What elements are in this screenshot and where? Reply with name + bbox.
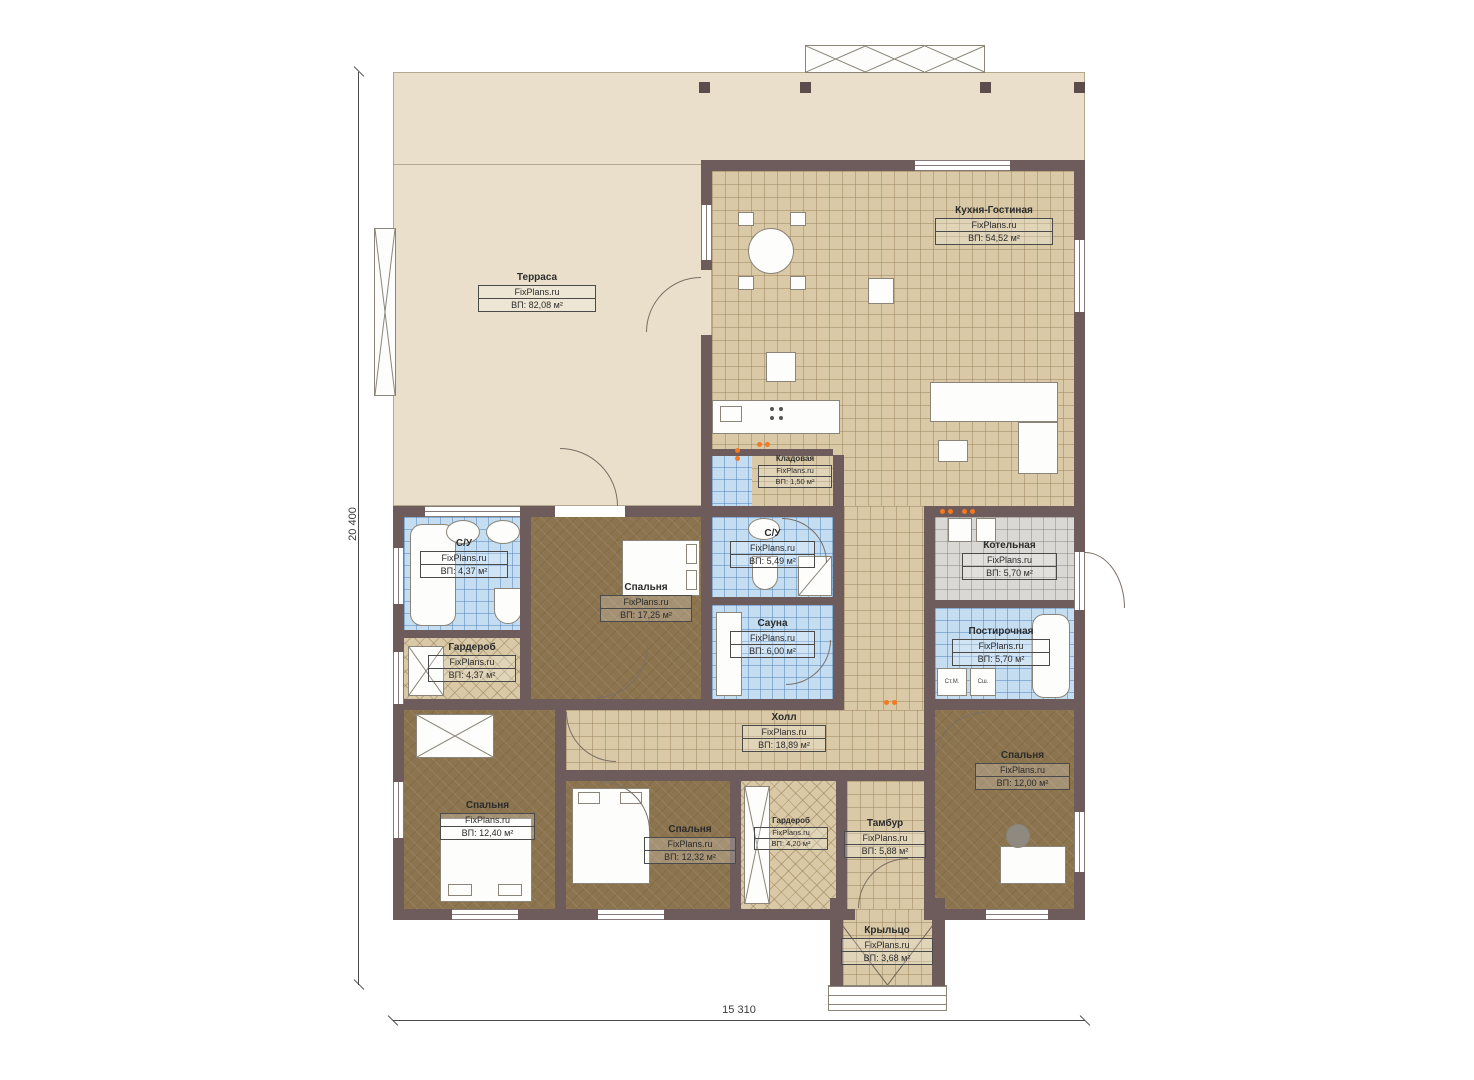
brand-text: FixPlans.ru	[976, 764, 1069, 777]
brand-text: FixPlans.ru	[963, 554, 1056, 567]
horizontal-dimension-line	[393, 1020, 1085, 1021]
room-area: ВП: 3,68 м²	[842, 952, 932, 964]
room-area: ВП: 12,32 м²	[645, 851, 735, 863]
wall	[701, 160, 1085, 171]
brand-text: FixPlans.ru	[759, 466, 831, 477]
dimension-tick	[354, 979, 365, 990]
horizontal-dimension-label: 15 310	[694, 1004, 784, 1016]
boiler-unit	[948, 518, 972, 542]
wall	[404, 630, 531, 638]
room-info-box: FixPlans.ru ВП: 6,00 м²	[730, 631, 815, 658]
terrace-side-steps	[374, 228, 396, 396]
window	[425, 506, 520, 517]
room-name: Кладовая	[758, 454, 832, 464]
room-label-sauna: Сауна FixPlans.ru ВП: 6,00 м²	[730, 618, 815, 658]
heat-vent-marker	[962, 509, 967, 514]
wall	[566, 770, 924, 781]
room-label-bedroom-right: Спальня FixPlans.ru ВП: 12,00 м²	[975, 750, 1070, 790]
toilet	[494, 588, 522, 624]
wall	[924, 506, 1085, 517]
vertical-dimension-label: 20 400	[347, 489, 359, 559]
brand-text: FixPlans.ru	[953, 640, 1049, 653]
room-label-boiler: Котельная FixPlans.ru ВП: 5,70 м²	[962, 540, 1057, 580]
room-label-terrace: Терраса FixPlans.ru ВП: 82,08 м²	[478, 272, 596, 312]
heat-vent-marker	[884, 700, 889, 705]
room-info-box: FixPlans.ru ВП: 12,40 м²	[440, 813, 535, 840]
wall	[520, 506, 531, 710]
sofa-horizontal	[930, 382, 1058, 422]
room-name: Постирочная	[952, 626, 1050, 638]
room-area: ВП: 1,50 м²	[759, 477, 831, 487]
sofa-vertical	[1018, 422, 1058, 474]
coffee-table	[938, 440, 968, 462]
room-name: Тамбур	[844, 818, 926, 830]
room-info-box: FixPlans.ru ВП: 5,70 м²	[962, 553, 1057, 580]
brand-text: FixPlans.ru	[842, 939, 932, 952]
room-info-box: FixPlans.ru ВП: 5,49 м²	[730, 541, 815, 568]
wall	[701, 506, 712, 710]
room-name: Гардероб	[428, 642, 516, 654]
terrace-floor	[393, 165, 712, 506]
wall	[701, 335, 712, 506]
heat-vent-marker	[735, 448, 740, 453]
room-name: С/У	[420, 538, 508, 550]
heat-vent-marker	[940, 509, 945, 514]
roof-post	[699, 82, 710, 93]
room-area: ВП: 4,37 м²	[421, 565, 507, 577]
pillow	[448, 884, 472, 896]
room-area: ВП: 54,52 м²	[936, 232, 1052, 244]
brand-text: FixPlans.ru	[429, 656, 515, 669]
dining-chair	[790, 276, 806, 290]
room-info-box: FixPlans.ru ВП: 4,37 м²	[420, 551, 508, 578]
room-label-bathroom-center: С/У FixPlans.ru ВП: 5,49 м²	[730, 528, 815, 568]
roof-post	[980, 82, 991, 93]
window	[393, 782, 404, 838]
room-info-box: FixPlans.ru ВП: 1,50 м²	[758, 465, 832, 488]
window	[598, 909, 664, 920]
room-area: ВП: 4,37 м²	[429, 669, 515, 681]
washing-machine: Ст.М.	[937, 668, 967, 696]
wall	[833, 455, 844, 710]
room-area: ВП: 5,88 м²	[845, 845, 925, 857]
room-label-bedroom-left: Спальня FixPlans.ru ВП: 12,40 м²	[440, 800, 535, 840]
storage-shower-strip	[712, 455, 752, 506]
wall	[935, 600, 1074, 608]
pillow	[686, 544, 697, 564]
room-area: ВП: 4,20 м²	[755, 839, 827, 849]
kitchen-island	[868, 278, 894, 304]
window	[452, 909, 518, 920]
boiler-unit	[976, 518, 996, 542]
room-area: ВП: 12,00 м²	[976, 777, 1069, 789]
hall-vertical-floor	[844, 506, 924, 710]
dining-chair	[738, 212, 754, 226]
window	[1074, 240, 1085, 312]
room-name: Спальня	[600, 582, 692, 594]
dimension-tick	[354, 66, 365, 77]
window	[915, 160, 1010, 171]
heat-vent-marker	[757, 442, 762, 447]
fireplace-stove	[766, 352, 796, 382]
hob-burners	[770, 407, 774, 411]
wall	[393, 699, 844, 710]
room-info-box: FixPlans.ru ВП: 12,32 м²	[644, 837, 736, 864]
dining-chair	[790, 212, 806, 226]
room-name: Терраса	[478, 272, 596, 284]
room-area: ВП: 12,40 м²	[441, 827, 534, 839]
room-info-box: FixPlans.ru ВП: 17,25 м²	[600, 595, 692, 622]
pillow	[498, 884, 522, 896]
room-name: Сауна	[730, 618, 815, 630]
dining-chair	[738, 276, 754, 290]
brand-text: FixPlans.ru	[479, 286, 595, 299]
room-name: Спальня	[440, 800, 535, 812]
door-arc	[1085, 552, 1125, 608]
brand-text: FixPlans.ru	[421, 552, 507, 565]
room-label-bathroom-left: С/У FixPlans.ru ВП: 4,37 м²	[420, 538, 508, 578]
room-area: ВП: 5,70 м²	[963, 567, 1056, 579]
room-area: ВП: 5,49 м²	[731, 555, 814, 567]
room-label-storage: Кладовая FixPlans.ru ВП: 1,50 м²	[758, 454, 832, 488]
room-area: ВП: 17,25 м²	[601, 609, 691, 621]
brand-text: FixPlans.ru	[845, 832, 925, 845]
room-info-box: FixPlans.ru ВП: 4,37 м²	[428, 655, 516, 682]
room-label-hall: Холл FixPlans.ru ВП: 18,89 м²	[742, 712, 826, 752]
room-name: Спальня	[975, 750, 1070, 762]
porch-steps	[828, 985, 947, 1011]
porch-wall	[932, 898, 945, 986]
wall	[555, 699, 566, 920]
roof-post	[800, 82, 811, 93]
room-label-bedroom-center: Спальня FixPlans.ru ВП: 17,25 м²	[600, 582, 692, 622]
wall	[625, 506, 844, 517]
brand-text: FixPlans.ru	[731, 632, 814, 645]
roof-post	[1074, 82, 1085, 93]
room-label-vestibule: Тамбур FixPlans.ru ВП: 5,88 м²	[844, 818, 926, 858]
room-info-box: FixPlans.ru ВП: 5,88 м²	[844, 831, 926, 858]
brand-text: FixPlans.ru	[731, 542, 814, 555]
brand-text: FixPlans.ru	[645, 838, 735, 851]
brand-text: FixPlans.ru	[441, 814, 534, 827]
boiler-door-gap	[1074, 552, 1085, 610]
dining-table	[748, 228, 794, 274]
desk	[1000, 846, 1066, 884]
top-bay-window	[805, 45, 985, 73]
room-name: Спальня	[644, 824, 736, 836]
window	[1074, 812, 1085, 872]
room-info-box: FixPlans.ru ВП: 82,08 м²	[478, 285, 596, 312]
room-info-box: FixPlans.ru ВП: 5,70 м²	[952, 639, 1050, 666]
dryer-machine: Сш.	[970, 668, 996, 696]
room-name: Гардероб	[754, 816, 828, 826]
room-info-box: FixPlans.ru ВП: 12,00 м²	[975, 763, 1070, 790]
room-name: Крыльцо	[841, 925, 933, 937]
window	[393, 548, 404, 604]
room-info-box: FixPlans.ru ВП: 18,89 м²	[742, 725, 826, 752]
room-area: ВП: 5,70 м²	[953, 653, 1049, 665]
room-name: С/У	[730, 528, 815, 540]
room-label-laundry: Постирочная FixPlans.ru ВП: 5,70 м²	[952, 626, 1050, 666]
room-area: ВП: 6,00 м²	[731, 645, 814, 657]
window	[701, 205, 712, 260]
floor-plan-page: { "plan": { "brand": "FixPlans.ru", "dim…	[0, 0, 1474, 1080]
brand-text: FixPlans.ru	[743, 726, 825, 739]
window	[393, 652, 404, 704]
room-name: Холл	[742, 712, 826, 724]
brand-text: FixPlans.ru	[601, 596, 691, 609]
desk-chair	[1006, 824, 1030, 848]
wardrobe-cabinet	[416, 714, 494, 758]
room-info-box: FixPlans.ru ВП: 3,68 м²	[841, 938, 933, 965]
kitchen-sink	[720, 406, 742, 422]
brand-text: FixPlans.ru	[936, 219, 1052, 232]
wall	[712, 597, 833, 605]
room-name: Котельная	[962, 540, 1057, 552]
pillow	[578, 792, 600, 804]
wall	[924, 699, 1085, 710]
room-label-porch: Крыльцо FixPlans.ru ВП: 3,68 м²	[841, 925, 933, 965]
room-label-kitchen-living: Кухня-Гостиная FixPlans.ru ВП: 54,52 м²	[935, 205, 1053, 245]
room-name: Кухня-Гостиная	[935, 205, 1053, 217]
room-area: ВП: 82,08 м²	[479, 299, 595, 311]
room-label-wardrobe-left: Гардероб FixPlans.ru ВП: 4,37 м²	[428, 642, 516, 682]
room-label-bedroom-mid: Спальня FixPlans.ru ВП: 12,32 м²	[644, 824, 736, 864]
window	[986, 909, 1048, 920]
brand-text: FixPlans.ru	[755, 828, 827, 839]
room-info-box: FixPlans.ru ВП: 4,20 м²	[754, 827, 828, 850]
room-area: ВП: 18,89 м²	[743, 739, 825, 751]
room-info-box: FixPlans.ru ВП: 54,52 м²	[935, 218, 1053, 245]
room-label-wardrobe-bottom: Гардероб FixPlans.ru ВП: 4,20 м²	[754, 816, 828, 850]
